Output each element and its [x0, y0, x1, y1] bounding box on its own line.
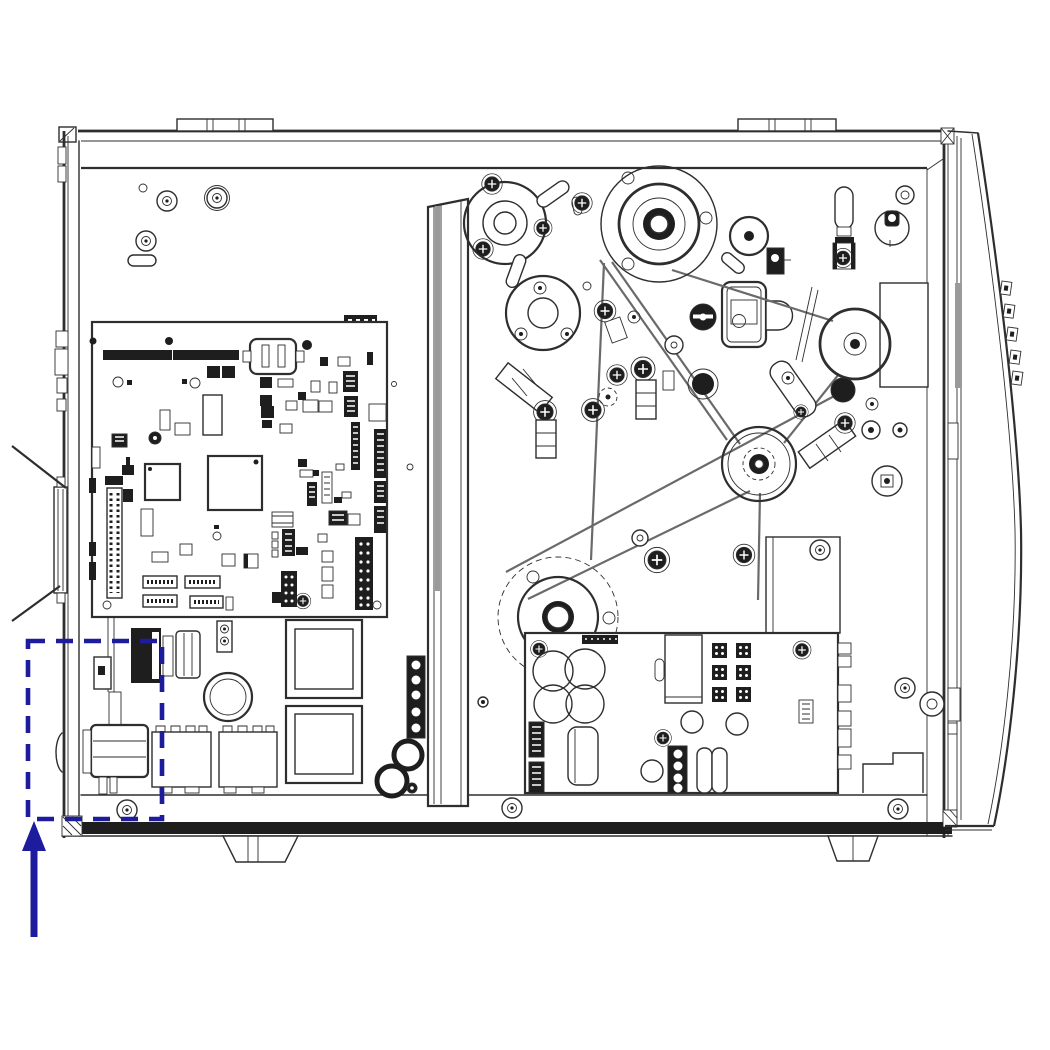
screw-icon [896, 186, 914, 204]
main-logic-board-part [342, 492, 351, 498]
main-logic-board-part [322, 551, 333, 562]
chassis-slot [128, 255, 156, 266]
fuse-holder-part [223, 640, 226, 643]
power-entry-region-part [110, 777, 117, 793]
ac-inlet [83, 725, 148, 777]
main-logic-board-part [182, 379, 187, 384]
fuse-holder [217, 621, 232, 652]
dot-connector-large-part [359, 560, 362, 563]
dot-connector-large-part [359, 542, 362, 545]
screw-icon [895, 678, 915, 698]
main-logic-board-part [214, 525, 219, 529]
dot-connector-part [291, 600, 294, 603]
battery-holder-part [250, 339, 296, 374]
relay-blocks-part [736, 687, 751, 702]
tension-arm-right-part [835, 413, 855, 433]
dot-connector-part [285, 600, 288, 603]
dc-output-tabs-part [838, 643, 851, 654]
mount-plate [880, 283, 928, 387]
main-logic-board-part [260, 377, 272, 388]
dot-connector-part [285, 592, 288, 595]
main-logic-board-part [329, 382, 337, 393]
front-bezel-part [948, 423, 958, 459]
bezel-buttons [1000, 281, 1023, 385]
ic-chip [203, 395, 222, 435]
main-drive-pulley [601, 166, 717, 282]
pointer-arrow-part [31, 849, 38, 937]
main-logic-board-part [311, 381, 320, 392]
tension-pulley-part [755, 460, 764, 469]
relay-blocks-part [736, 643, 751, 658]
main-logic-board-part [298, 459, 307, 467]
connector-strip-part [412, 708, 421, 717]
main-logic-board-part [180, 544, 192, 555]
panel-cutout [56, 733, 62, 772]
relay-blocks-part-part [721, 674, 724, 677]
ac-inlet-part [83, 730, 91, 773]
divider-wall [428, 199, 468, 806]
screw-icon [207, 188, 227, 208]
fuse-holder-part [223, 628, 226, 631]
cpu-chip [208, 456, 262, 510]
figure-canvas [0, 0, 1050, 1050]
power-supply-board-part [655, 659, 664, 681]
relay-blocks-part [736, 665, 751, 680]
main-logic-board-part [280, 424, 292, 433]
relay-blocks-part-part [715, 690, 718, 693]
dot-connector-large-part [366, 578, 369, 581]
module-upper [286, 620, 362, 698]
screw-icon [607, 365, 627, 385]
dc-output-tabs-part [838, 685, 851, 702]
relay-blocks-part-part [739, 646, 742, 649]
power-switch-part [98, 666, 105, 675]
dot-connector-part [291, 576, 294, 579]
rear-panel-connectors [12, 147, 68, 621]
output-connector-part [674, 774, 683, 783]
main-logic-board-part [261, 406, 274, 418]
drive-mechanism-part [692, 373, 714, 395]
relay-blocks-part-part [712, 665, 727, 680]
pin-headers [529, 722, 544, 793]
relay-blocks-part-part [739, 690, 742, 693]
main-logic-board-part [348, 514, 360, 525]
screw-icon [644, 547, 669, 572]
relay-blocks-part-part [736, 687, 751, 702]
dot-connector-large-part [359, 596, 362, 599]
main-logic-board-part [319, 401, 332, 412]
rear-panel-connectors-part [57, 399, 66, 411]
dot-connector-large [355, 537, 373, 610]
relay-blocks-part-part [739, 674, 742, 677]
header-dimm-part [123, 489, 133, 502]
screw-icon [793, 641, 811, 659]
main-logic-board [89, 315, 387, 617]
relay-blocks-part [712, 665, 727, 680]
screw-icon [295, 593, 311, 609]
main-logic-board-part [160, 410, 170, 430]
roller-post-part [631, 357, 655, 381]
main-logic-board-part [282, 529, 295, 556]
main-logic-board-part [272, 532, 278, 539]
eclip-idler [690, 304, 716, 330]
screw-icon [136, 231, 156, 251]
printer-foot-right [828, 836, 878, 861]
rear-panel-connectors-part [58, 166, 66, 182]
relay-blocks-part-part [715, 674, 718, 677]
printer-foot-left [223, 836, 298, 862]
connector-strip-part [412, 691, 421, 700]
bezel-buttons-part [1009, 350, 1021, 364]
relay-blocks-part-part [739, 668, 742, 671]
screw-icon [733, 544, 755, 566]
screw-icon [482, 174, 502, 194]
output-connector-part [674, 762, 683, 771]
front-bezel-part [978, 133, 1021, 826]
relay-blocks-part [712, 687, 727, 702]
chassis-top-tab-left-part [177, 119, 273, 131]
main-logic-board-part [244, 554, 248, 568]
main-logic-board-part [207, 366, 220, 378]
main-logic-board-part [126, 457, 130, 465]
dot-connector-large-part [359, 603, 362, 606]
relay-blocks-part-part [745, 652, 748, 655]
bezel-buttons-part [1011, 371, 1023, 385]
dot-connector-part [285, 576, 288, 579]
main-logic-board-part [105, 476, 123, 485]
toggle-assembly-part [837, 227, 851, 236]
bezel-buttons-part-part [1004, 285, 1009, 291]
dot-connector-large-part [366, 542, 369, 545]
module-upper-part [295, 629, 353, 689]
power-supply-board-part [712, 748, 727, 793]
ac-inlet-part [91, 725, 148, 777]
main-logic-board-part [175, 423, 190, 435]
dot-connector-part [291, 592, 294, 595]
memory-slot [103, 350, 172, 360]
power-supply-board-part [920, 692, 944, 716]
dot-connector [281, 571, 297, 607]
roller-post-part [636, 380, 656, 419]
main-logic-board-part [272, 592, 281, 603]
dot-connector-large-part [366, 603, 369, 606]
screw-icon [534, 219, 552, 237]
main-drive-pulley-part [650, 215, 668, 233]
printer-foot-left-part [223, 836, 298, 862]
battery-holder-part [243, 351, 251, 362]
battery-holder [243, 339, 304, 374]
relay-blocks-part-part [745, 646, 748, 649]
relay-blocks-part-part [715, 668, 718, 671]
module-lower-part [295, 714, 353, 774]
front-bezel-part [948, 723, 957, 734]
output-connector-part [674, 750, 683, 759]
main-logic-board-part [278, 379, 293, 387]
dot-connector-large-part [359, 569, 362, 572]
bezel-buttons-part [1000, 281, 1012, 295]
memory-slot [173, 350, 239, 360]
main-logic-board-part [302, 340, 312, 350]
bezel-buttons-part [1003, 304, 1015, 318]
screw-icon [810, 540, 830, 560]
power-entry-region-part [481, 700, 485, 704]
main-logic-board-part [260, 395, 272, 406]
main-logic-board-part [296, 547, 308, 555]
relay-blocks-part-part [721, 696, 724, 699]
platen-pulley-part [831, 378, 855, 402]
dot-connector-large-part [366, 569, 369, 572]
main-logic-board-part [127, 380, 132, 385]
dc-output-tabs-part [838, 711, 851, 726]
main-logic-board-part [303, 400, 318, 412]
bezel-buttons-part-part [1007, 308, 1012, 314]
dot-connector-large-part [366, 587, 369, 590]
front-bezel [945, 131, 1023, 830]
connector-strip-part [412, 676, 421, 685]
main-logic-board-part [262, 420, 272, 428]
dc-output-tabs-part [838, 755, 851, 769]
main-logic-board-part [336, 464, 344, 470]
pointer-arrow [22, 821, 46, 937]
battery-holder-part [296, 351, 304, 362]
divider-wall-part [435, 206, 440, 591]
relay-blocks-part-part [721, 652, 724, 655]
roller-post-part [663, 371, 674, 390]
main-logic-board-part [338, 357, 350, 366]
dot-connector-large-part [359, 587, 362, 590]
main-logic-board-part [148, 467, 152, 471]
guide-post-part [884, 478, 890, 484]
main-logic-board-part [254, 460, 259, 465]
rear-panel-connectors-part [57, 378, 67, 393]
main-logic-board-part [272, 541, 278, 548]
choke [176, 631, 200, 678]
main-logic-board-part [322, 585, 333, 598]
main-logic-board-part [300, 470, 313, 477]
screw-icon [531, 641, 548, 658]
relay-blocks-part-part [745, 690, 748, 693]
main-logic-board-part [222, 554, 235, 566]
chassis-frame-part [62, 822, 952, 834]
relay-blocks-part-part [721, 646, 724, 649]
heatsink-right-part [224, 787, 236, 793]
edge-connectors-part [374, 506, 386, 533]
edge-connectors-part [353, 427, 358, 463]
main-logic-board-part [122, 465, 134, 475]
dot-connector-part [281, 571, 297, 607]
front-bezel-part [955, 283, 962, 388]
main-logic-board-part [272, 512, 293, 527]
connector-strip-part [412, 661, 421, 670]
leader-line [12, 446, 66, 488]
relay-blocks-part-part [739, 652, 742, 655]
relay-blocks-part-part [712, 687, 727, 702]
dc-output-tabs-part [838, 729, 851, 747]
main-logic-board-part [152, 552, 168, 562]
relay-blocks-part-part [739, 696, 742, 699]
jumper-header [799, 700, 813, 723]
main-logic-board-part [318, 534, 327, 542]
toggle-assembly-part [833, 248, 852, 267]
main-logic-board-part [272, 550, 278, 557]
screw-icon [502, 798, 522, 818]
main-logic-board-part [153, 436, 157, 440]
main-logic-board-part [286, 401, 297, 410]
main-logic-board-part [322, 567, 333, 581]
dot-connector-large-part [359, 551, 362, 554]
relay-blocks-part-part [721, 690, 724, 693]
fuse-holder-part [217, 621, 232, 652]
power-switch [94, 657, 111, 689]
screw-icon [888, 799, 908, 819]
dot-connector-part [285, 584, 288, 587]
dot-connector-large-part [366, 560, 369, 563]
battery-holder-part [262, 345, 269, 367]
main-logic-board-part [165, 337, 173, 345]
bezel-buttons-part-part [1013, 354, 1018, 360]
main-logic-board-part [222, 366, 235, 378]
power-supply-board-part [697, 748, 712, 793]
chassis-top-tab-right-part [738, 119, 836, 131]
main-logic-board-part [367, 352, 373, 365]
leader-line [12, 586, 60, 621]
relay-blocks-part-part [745, 696, 748, 699]
screw-icon [582, 399, 605, 422]
parallel-port-part [57, 593, 65, 603]
platen-pulley-part [850, 339, 860, 349]
main-logic-board-part [141, 509, 153, 536]
heatsink-left-part [185, 787, 199, 793]
bezel-buttons-part-part [1010, 331, 1015, 337]
printhead-bracket-part [731, 300, 757, 324]
drive-mechanism-part [868, 427, 874, 433]
bezel-buttons-part [1006, 327, 1018, 341]
drive-mechanism-part [898, 428, 903, 433]
drive-mechanism-part [606, 395, 611, 400]
parallel-port-part [54, 487, 67, 593]
edge-connectors-part [369, 404, 386, 421]
tension-arm-left-part [536, 420, 556, 458]
serial-port [55, 349, 68, 375]
main-logic-board-part [90, 338, 97, 345]
screw-icon [572, 193, 592, 213]
battery-holder-part [278, 345, 285, 367]
main-logic-board-part [313, 470, 319, 476]
pointer-arrow-part [22, 821, 46, 851]
edge-connectors-part [374, 481, 386, 503]
sensor-block-part [771, 254, 779, 262]
relay-blocks-part [712, 643, 727, 658]
screw-icon [157, 191, 177, 211]
parallel-port [54, 477, 67, 603]
screw-icon [473, 239, 493, 259]
power-entry-region-part [163, 636, 173, 676]
main-logic-board-part [307, 482, 317, 506]
module-lower [286, 706, 362, 783]
relay-blocks-part-part [736, 665, 751, 680]
header-dimm-part [107, 488, 122, 598]
wire-connectors-part [226, 597, 233, 610]
chassis-top-tab-right [738, 119, 836, 131]
toggle-assembly-part [851, 243, 855, 269]
relay-blocks-part-part [736, 643, 751, 658]
bezel-buttons-part-part [1015, 375, 1020, 381]
main-logic-board-part [89, 542, 96, 556]
toggle-assembly-part [835, 237, 854, 243]
dot-connector-part [291, 584, 294, 587]
dot-connector-large-part [359, 578, 362, 581]
heatsink-right-part [219, 732, 277, 787]
main-logic-board-part [334, 497, 342, 503]
transformer [665, 635, 702, 703]
relay-blocks-part-part [715, 646, 718, 649]
relay-blocks-part-part [712, 643, 727, 658]
dc-output-tabs-part [838, 656, 851, 667]
connector-strip [407, 656, 425, 738]
output-connector-part [674, 784, 683, 793]
output-connector [668, 746, 687, 793]
main-logic-board-part [298, 392, 306, 400]
rear-panel-connectors-part [58, 147, 66, 164]
idler-pulley-small-part [744, 231, 754, 241]
relay-blocks-part-part [721, 668, 724, 671]
eclip-idler-part [700, 314, 707, 321]
connector-strip-part [412, 724, 421, 733]
drive-mechanism-part [632, 530, 648, 546]
printhead-bracket-part [766, 301, 793, 330]
power-entry-region-part [99, 777, 107, 794]
relay-blocks-part-part [715, 696, 718, 699]
dot-connector-large-part [355, 537, 373, 610]
main-logic-board-part [320, 357, 328, 366]
main-logic-board-part [89, 562, 96, 580]
dot-connector-large-part [366, 596, 369, 599]
rear-panel-connectors-part [56, 331, 68, 347]
screw-icon [655, 730, 672, 747]
toggle-assembly-part [835, 187, 853, 229]
relay-blocks-part-part [745, 674, 748, 677]
relay-blocks-part-part [715, 652, 718, 655]
heatsink-right-part [252, 787, 264, 793]
main-logic-board-part [92, 447, 100, 468]
front-bezel-part [948, 688, 960, 721]
screw-icon [594, 300, 616, 322]
dot-connector-large-part [366, 551, 369, 554]
bail-post-part [888, 214, 896, 222]
edge-connectors-part [377, 434, 384, 470]
roller [665, 336, 683, 354]
power-entry-region-part [410, 786, 414, 790]
heatsink-right [219, 726, 277, 793]
power-supply-board-part [582, 635, 618, 644]
main-logic-board-part [329, 511, 347, 525]
power-supply-board-part [568, 727, 598, 785]
chassis-top-tab-left [177, 119, 273, 131]
relay-blocks-part-part [745, 668, 748, 671]
rewind-pulley-part [547, 606, 569, 628]
rocker-bracket-part [794, 405, 808, 419]
main-logic-board-part [89, 478, 96, 493]
printer-diagram [0, 0, 1050, 1050]
